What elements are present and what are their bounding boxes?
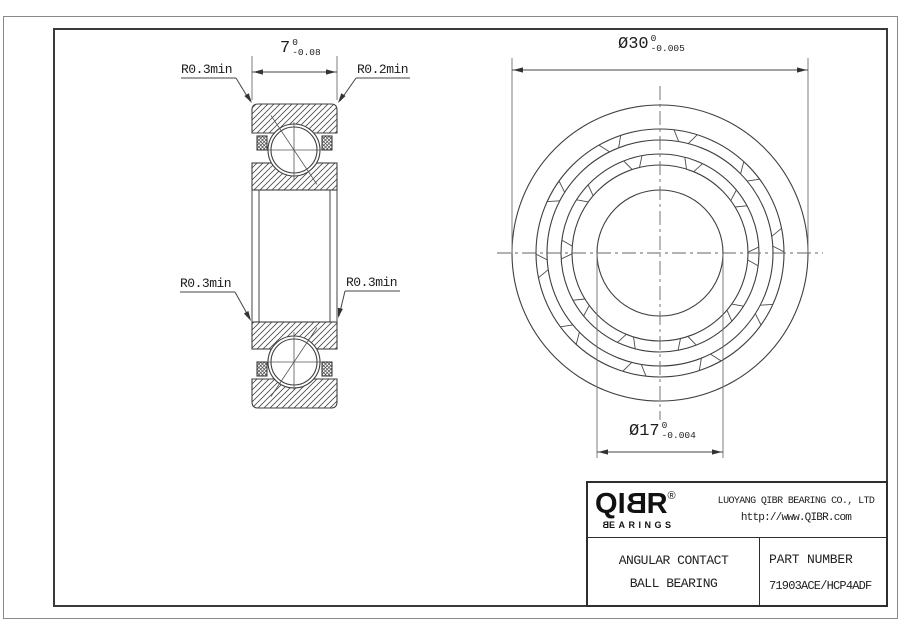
- width-dimension: 7 0 -0.08: [280, 40, 321, 58]
- title-block: QIBR® BEARINGS LUOYANG QIBR BEARING CO.,…: [586, 481, 888, 607]
- cage-bottom-left: [257, 362, 267, 376]
- radius-label-top-right: R0.2min: [357, 62, 408, 77]
- cage-top-left: [257, 136, 267, 150]
- company-website: http://www.QIBR.com: [741, 512, 851, 524]
- outer-diameter-dimension: Ø30 0 -0.005: [618, 36, 685, 54]
- section-view: [252, 104, 337, 408]
- cage-bottom-right: [322, 362, 332, 376]
- bore-lines: [252, 190, 337, 322]
- centerlines: [497, 86, 823, 420]
- product-name-line1: ANGULAR CONTACT: [619, 553, 729, 568]
- outer-diameter-value: Ø30: [618, 36, 649, 53]
- title-block-header-row: QIBR® BEARINGS LUOYANG QIBR BEARING CO.,…: [588, 483, 886, 538]
- radius-label-bottom-right: R0.3min: [346, 275, 397, 290]
- bore-diameter-value: Ø17: [629, 423, 660, 440]
- product-name-cell: ANGULAR CONTACT BALL BEARING: [588, 538, 760, 606]
- part-number-label: PART NUMBER: [769, 552, 886, 567]
- bore-diameter-dimension: Ø17 0 -0.004: [629, 423, 696, 441]
- company-info: LUOYANG QIBR BEARING CO., LTD http://www…: [706, 483, 886, 537]
- radius-label-bottom-left: R0.3min: [180, 276, 231, 291]
- product-name-line2: BALL BEARING: [630, 576, 718, 591]
- company-logo: QIBR® BEARINGS: [588, 483, 706, 537]
- company-name: LUOYANG QIBR BEARING CO., LTD: [718, 496, 875, 507]
- logo-text: QIBR®: [595, 490, 706, 519]
- part-number-value: 71903ACE/HCP4ADF: [769, 579, 886, 593]
- drawing-page: R0.3min R0.2min R0.3min R0.3min 7 0 -0.0…: [0, 0, 900, 636]
- width-value: 7: [280, 40, 290, 57]
- logo-subtext: BEARINGS: [599, 520, 706, 530]
- radius-label-top-left: R0.3min: [181, 62, 232, 77]
- cage-top-right: [322, 136, 332, 150]
- registered-mark: ®: [668, 490, 676, 502]
- part-number-cell: PART NUMBER 71903ACE/HCP4ADF: [760, 538, 886, 606]
- title-block-detail-row: ANGULAR CONTACT BALL BEARING PART NUMBER…: [588, 538, 886, 606]
